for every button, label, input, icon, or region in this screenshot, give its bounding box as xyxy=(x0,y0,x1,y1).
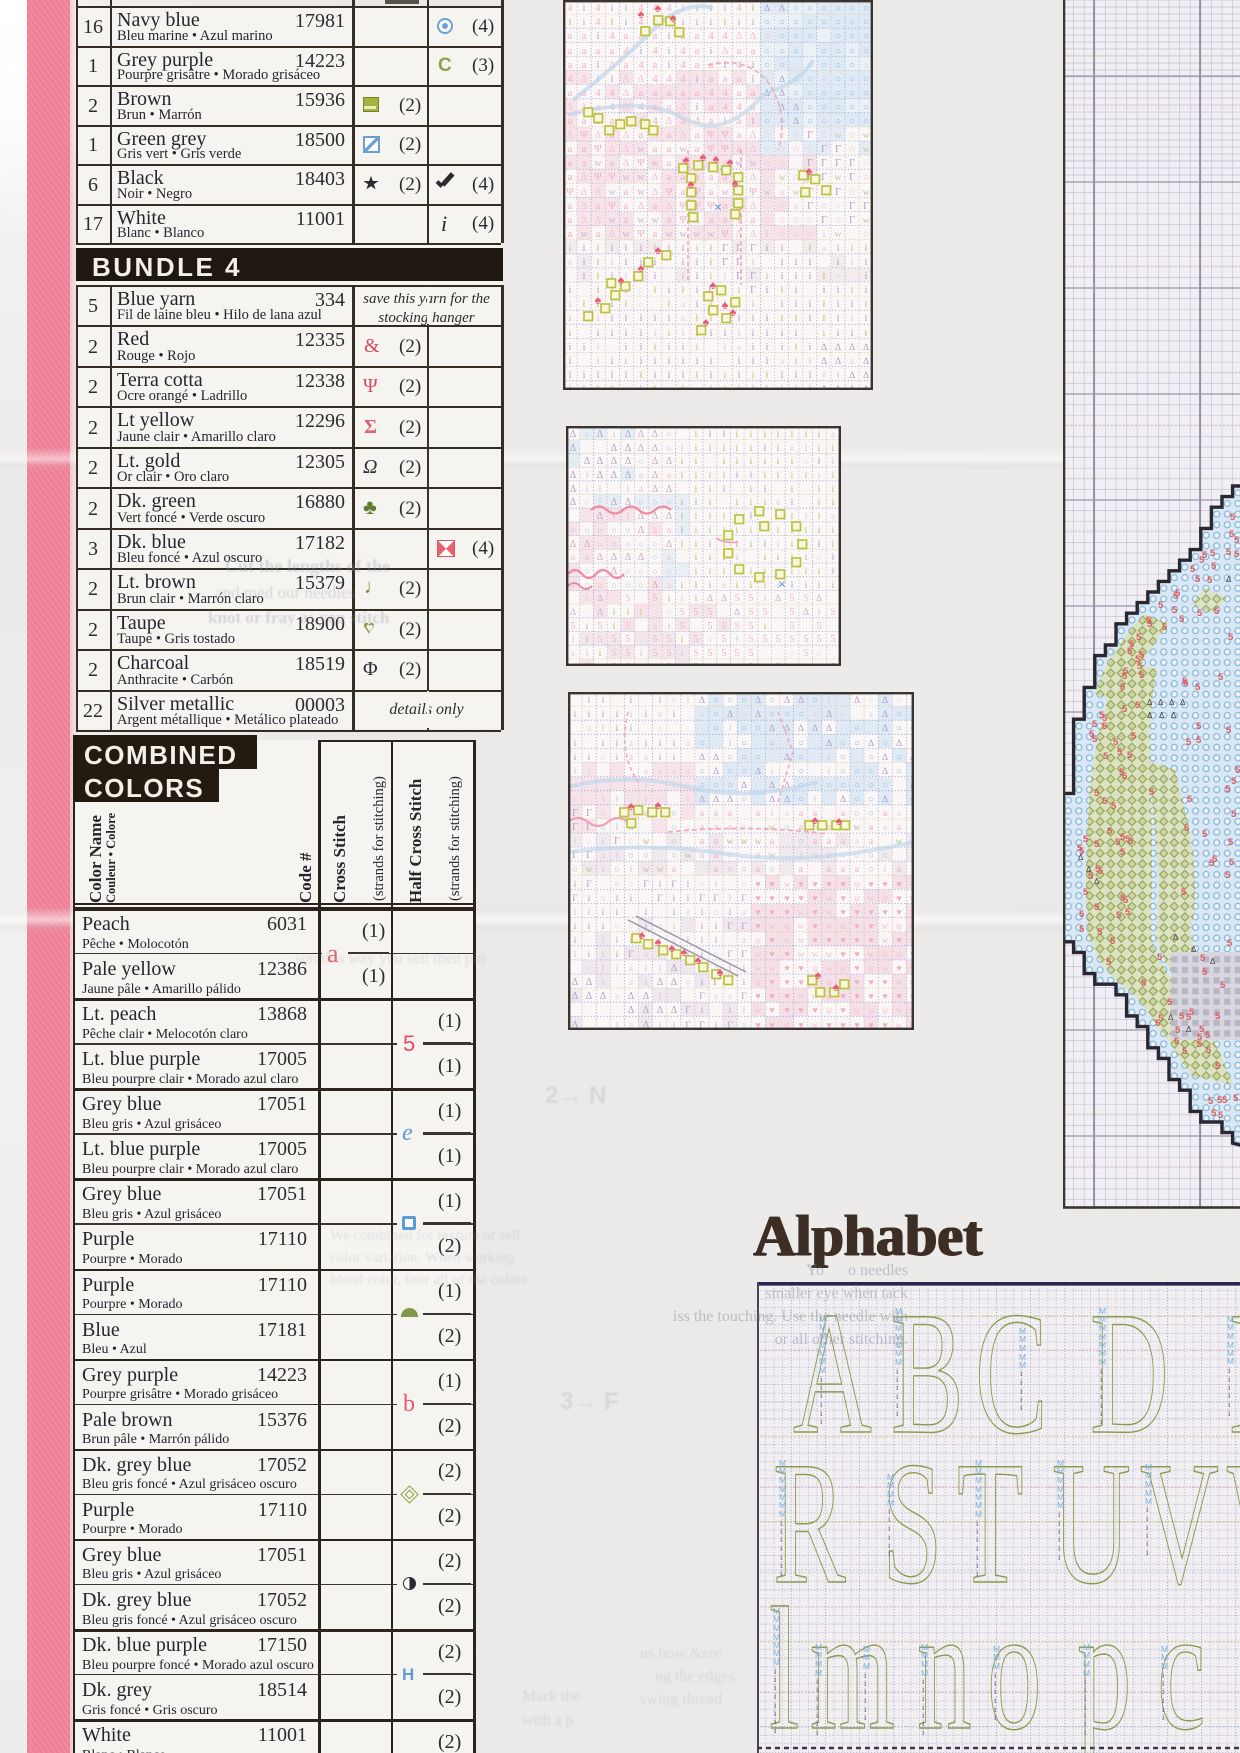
svg-text:5: 5 xyxy=(1209,858,1215,869)
svg-text:Δ: Δ xyxy=(625,552,632,563)
svg-text:5: 5 xyxy=(1167,997,1173,1008)
svg-text:Δ: Δ xyxy=(657,1005,664,1016)
svg-text:Γ: Γ xyxy=(835,144,841,155)
svg-text:a: a xyxy=(714,836,719,847)
svg-text:i: i xyxy=(736,444,739,454)
svg-text:ł: ł xyxy=(668,300,671,310)
svg-text:Δ: Δ xyxy=(581,215,588,226)
svg-text:5: 5 xyxy=(1229,529,1235,540)
svg-text:i: i xyxy=(738,370,741,381)
svg-text:4: 4 xyxy=(596,3,601,14)
svg-text:5: 5 xyxy=(1102,713,1108,724)
svg-text:○: ○ xyxy=(854,780,860,791)
svg-text:a: a xyxy=(568,214,573,226)
svg-text:○: ○ xyxy=(586,836,591,846)
svg-text:☆: ☆ xyxy=(848,144,857,155)
svg-text:i: i xyxy=(611,356,614,367)
svg-text:i: i xyxy=(569,370,572,381)
svg-text:i: i xyxy=(723,457,726,467)
svg-text:a: a xyxy=(667,214,672,226)
svg-text:ł: ł xyxy=(766,371,769,381)
svg-text:♥: ♥ xyxy=(854,977,859,987)
svg-text:5: 5 xyxy=(1117,747,1123,758)
svg-text:☆: ☆ xyxy=(778,215,787,226)
svg-text:Δ: Δ xyxy=(1191,945,1197,954)
svg-text:i: i xyxy=(809,370,812,381)
svg-text:a: a xyxy=(700,808,705,819)
svg-text:Γ: Γ xyxy=(572,894,578,904)
svg-text:○: ○ xyxy=(821,3,827,14)
svg-text:i: i xyxy=(681,512,684,522)
svg-text:Γ: Γ xyxy=(572,822,578,833)
svg-text:a: a xyxy=(571,648,575,658)
svg-text:w: w xyxy=(637,172,645,183)
svg-text:Δ: Δ xyxy=(597,429,604,440)
svg-text:w: w xyxy=(755,949,762,959)
svg-text:Δ: Δ xyxy=(609,229,616,240)
svg-text:♠: ♠ xyxy=(700,150,707,164)
svg-text:i: i xyxy=(583,271,586,282)
svg-text:5: 5 xyxy=(1181,887,1187,898)
svg-text:5: 5 xyxy=(1179,614,1185,625)
svg-text:5: 5 xyxy=(612,634,617,645)
svg-text:○: ○ xyxy=(784,709,790,720)
svg-text:w: w xyxy=(755,837,762,847)
svg-text:5: 5 xyxy=(1120,847,1126,858)
svg-text:i: i xyxy=(729,908,732,918)
svg-text:×: × xyxy=(714,200,723,216)
svg-text:w: w xyxy=(657,865,664,875)
svg-text:♥: ♥ xyxy=(784,949,789,959)
svg-text:♥: ♥ xyxy=(755,879,760,889)
svg-text:○: ○ xyxy=(584,497,589,507)
svg-text:a: a xyxy=(568,171,573,183)
svg-text:Δ: Δ xyxy=(623,144,630,155)
svg-text:a: a xyxy=(714,991,718,1001)
svg-text:a: a xyxy=(883,822,887,832)
svg-text:Γ: Γ xyxy=(722,257,728,268)
svg-text:i: i xyxy=(805,567,808,577)
svg-text:♥: ♥ xyxy=(784,907,789,917)
svg-text:i: i xyxy=(625,342,628,353)
svg-text:w: w xyxy=(835,173,842,183)
svg-text:(strands for stitching): (strands for stitching) xyxy=(447,776,463,901)
svg-text:w: w xyxy=(882,963,889,973)
svg-text:Δ: Δ xyxy=(570,429,577,440)
svg-text:a: a xyxy=(855,864,860,875)
svg-text:w: w xyxy=(769,823,776,833)
svg-text:i: i xyxy=(696,18,699,28)
svg-text:○: ○ xyxy=(625,566,630,576)
svg-text:w: w xyxy=(826,949,833,959)
svg-text:w: w xyxy=(896,977,903,987)
svg-text:♥: ♥ xyxy=(769,893,774,903)
svg-text:Δ: Δ xyxy=(666,539,673,550)
svg-text:☆: ☆ xyxy=(806,144,815,155)
svg-text:Δ: Δ xyxy=(727,795,733,805)
svg-text:i: i xyxy=(750,498,753,508)
svg-text:w: w xyxy=(755,963,762,973)
svg-text:Δ: Δ xyxy=(755,696,761,706)
svg-text:○: ○ xyxy=(793,3,799,14)
svg-text:4: 4 xyxy=(708,87,714,99)
svg-text:i: i xyxy=(818,526,821,536)
svg-text:i: i xyxy=(736,457,739,467)
svg-text:a: a xyxy=(568,59,573,71)
svg-text:Δ: Δ xyxy=(623,74,630,85)
svg-text:○: ○ xyxy=(572,865,578,875)
svg-text:4: 4 xyxy=(652,73,658,85)
svg-text:○: ○ xyxy=(798,709,804,720)
svg-text:○: ○ xyxy=(779,46,785,57)
svg-text:i: i xyxy=(781,370,784,381)
svg-text:i: i xyxy=(574,710,577,720)
svg-text:i: i xyxy=(777,457,780,467)
svg-text:Δ: Δ xyxy=(755,710,761,720)
svg-text:i: i xyxy=(777,444,780,454)
svg-text:5: 5 xyxy=(1094,788,1100,799)
svg-text:♥: ♥ xyxy=(798,893,803,903)
svg-text:○: ○ xyxy=(868,865,874,875)
svg-text:i: i xyxy=(668,370,671,381)
svg-text:w: w xyxy=(798,907,805,917)
svg-text:♥: ♥ xyxy=(769,977,774,987)
svg-text:5: 5 xyxy=(749,648,754,659)
svg-text:○: ○ xyxy=(868,766,874,777)
svg-text:w: w xyxy=(863,145,870,155)
svg-text:♥: ♥ xyxy=(812,907,817,917)
svg-text:i: i xyxy=(625,18,628,28)
svg-text:5: 5 xyxy=(1235,765,1240,776)
svg-text:i: i xyxy=(695,444,698,454)
svg-text:a: a xyxy=(709,73,714,85)
svg-text:i: i xyxy=(781,342,784,353)
svg-text:w: w xyxy=(622,229,630,240)
svg-text:5: 5 xyxy=(708,621,713,632)
svg-text:i: i xyxy=(791,485,794,495)
svg-text:♥: ♥ xyxy=(868,991,873,1001)
svg-text:i: i xyxy=(583,4,586,14)
svg-text:5: 5 xyxy=(1222,1095,1228,1106)
svg-text:5: 5 xyxy=(1079,909,1085,920)
svg-text:a: a xyxy=(568,157,573,169)
svg-text:5: 5 xyxy=(1210,548,1216,559)
svg-text:○: ○ xyxy=(638,539,643,549)
svg-text:○: ○ xyxy=(741,709,746,719)
svg-text:○: ○ xyxy=(835,17,841,28)
svg-text:i: i xyxy=(668,329,671,339)
svg-text:i: i xyxy=(616,950,619,960)
svg-text:i: i xyxy=(791,457,794,467)
svg-text:○: ○ xyxy=(628,836,633,846)
svg-text:Γ: Γ xyxy=(614,836,620,847)
svg-text:Δ: Δ xyxy=(816,594,822,604)
svg-text:i: i xyxy=(602,922,605,932)
svg-text:ψ: ψ xyxy=(854,894,860,904)
svg-text:S: S xyxy=(625,621,631,632)
svg-text:Δ: Δ xyxy=(597,552,604,563)
svg-text:Δ: Δ xyxy=(584,456,591,467)
svg-text:5: 5 xyxy=(1157,952,1163,963)
svg-text:♥: ♥ xyxy=(854,991,859,1001)
svg-text:i: i xyxy=(832,581,835,591)
svg-text:○: ○ xyxy=(812,695,818,706)
svg-text:○: ○ xyxy=(798,766,804,777)
svg-text:○: ○ xyxy=(713,709,719,720)
svg-text:○: ○ xyxy=(896,752,902,763)
svg-text:○: ○ xyxy=(685,977,690,987)
svg-text:○: ○ xyxy=(611,525,616,535)
svg-text:i: i xyxy=(630,696,633,706)
svg-text:5: 5 xyxy=(1200,953,1206,964)
svg-text:a: a xyxy=(709,186,714,198)
svg-text:5: 5 xyxy=(680,621,685,632)
svg-text:5: 5 xyxy=(749,621,754,632)
svg-text:i: i xyxy=(710,46,713,57)
svg-text:i: i xyxy=(766,356,769,367)
svg-text:5: 5 xyxy=(763,634,768,645)
svg-text:i: i xyxy=(724,371,727,381)
svg-text:○: ○ xyxy=(849,74,855,85)
svg-text:i: i xyxy=(625,313,628,324)
svg-text:Δ: Δ xyxy=(623,130,630,141)
svg-text:i: i xyxy=(795,357,798,367)
svg-text:☆: ☆ xyxy=(792,215,801,226)
svg-text:i: i xyxy=(781,257,784,268)
svg-text:i: i xyxy=(588,894,591,904)
svg-text:i: i xyxy=(791,567,794,577)
svg-text:ψ: ψ xyxy=(784,922,790,932)
svg-text:Δ: Δ xyxy=(882,724,888,734)
svg-text:○: ○ xyxy=(584,566,589,576)
svg-text:w: w xyxy=(651,215,659,226)
svg-text:Γ: Γ xyxy=(643,880,649,890)
svg-text:5: 5 xyxy=(1155,1018,1161,1029)
svg-text:Δ: Δ xyxy=(611,470,618,481)
svg-text:a: a xyxy=(598,580,603,591)
svg-text:♥: ♥ xyxy=(784,977,789,987)
svg-text:ł: ł xyxy=(710,244,713,254)
svg-text:i: i xyxy=(795,271,798,282)
svg-text:5: 5 xyxy=(667,648,672,659)
svg-text:Δ: Δ xyxy=(567,130,574,141)
svg-text:w: w xyxy=(651,158,659,169)
svg-text:Δ: Δ xyxy=(581,201,588,212)
svg-text:w: w xyxy=(769,963,776,973)
svg-text:Δ: Δ xyxy=(567,102,574,113)
svg-text:Ψ: Ψ xyxy=(679,201,687,212)
svg-text:a: a xyxy=(686,766,690,776)
svg-text:Δ: Δ xyxy=(570,497,577,508)
svg-text:Δ: Δ xyxy=(1168,1013,1174,1022)
svg-text:i: i xyxy=(616,936,619,946)
svg-text:i: i xyxy=(865,313,868,324)
svg-text:a: a xyxy=(667,470,672,481)
svg-text:○: ○ xyxy=(793,46,799,57)
svg-text:5: 5 xyxy=(1233,1093,1239,1104)
svg-text:a: a xyxy=(737,73,742,85)
svg-text:5: 5 xyxy=(1158,600,1164,611)
svg-text:i: i xyxy=(764,430,767,440)
svg-text:Γ: Γ xyxy=(628,950,634,960)
svg-text:a: a xyxy=(624,214,629,226)
svg-text:a: a xyxy=(582,45,587,57)
svg-text:a: a xyxy=(742,907,746,917)
svg-text:ł: ł xyxy=(823,272,826,282)
svg-text:○: ○ xyxy=(727,752,733,763)
svg-text:a: a xyxy=(582,157,587,169)
svg-text:Ψ: Ψ xyxy=(566,187,574,198)
svg-text:w: w xyxy=(580,229,588,240)
svg-text:i: i xyxy=(668,342,671,353)
svg-text:Δ: Δ xyxy=(707,594,713,604)
svg-text:w: w xyxy=(896,949,903,959)
svg-text:i: i xyxy=(696,356,699,367)
svg-text:i: i xyxy=(654,313,657,324)
svg-text:5: 5 xyxy=(708,607,713,618)
svg-text:i: i xyxy=(701,1006,704,1016)
svg-text:Δ: Δ xyxy=(570,443,577,454)
svg-text:a: a xyxy=(653,87,658,99)
svg-text:5: 5 xyxy=(1220,980,1226,991)
svg-text:w: w xyxy=(835,131,842,141)
svg-text:5: 5 xyxy=(1187,794,1193,805)
svg-text:5: 5 xyxy=(1141,978,1147,989)
svg-text:○: ○ xyxy=(614,865,620,875)
svg-text:Δ: Δ xyxy=(826,739,832,749)
svg-text:ł: ł xyxy=(795,343,798,353)
svg-text:5: 5 xyxy=(776,634,781,645)
svg-text:♠: ♠ xyxy=(655,243,662,257)
svg-text:♥: ♥ xyxy=(854,935,859,945)
svg-text:ł: ł xyxy=(865,300,868,310)
svg-text:♥: ♥ xyxy=(784,1005,789,1015)
svg-text:Half Cross Stitch: Half Cross Stitch xyxy=(406,778,425,903)
svg-text:i: i xyxy=(795,299,798,310)
svg-text:i: i xyxy=(701,936,704,946)
svg-text:○: ○ xyxy=(625,525,630,535)
svg-text:5: 5 xyxy=(1125,907,1131,918)
svg-text:i: i xyxy=(574,922,577,932)
svg-text:Γ: Γ xyxy=(821,172,827,183)
svg-text:S: S xyxy=(693,648,699,659)
svg-text:♥: ♥ xyxy=(854,921,859,931)
svg-text:i: i xyxy=(723,471,726,481)
svg-text:Δ: Δ xyxy=(638,201,645,212)
svg-text:a: a xyxy=(653,525,658,536)
svg-text:i: i xyxy=(832,540,835,550)
svg-text:♥: ♥ xyxy=(769,907,774,917)
svg-text:i: i xyxy=(832,444,835,454)
svg-text:5: 5 xyxy=(1172,605,1178,616)
svg-text:♠: ♠ xyxy=(669,941,676,955)
svg-text:5: 5 xyxy=(1111,801,1117,812)
svg-text:i: i xyxy=(583,257,586,268)
svg-text:i: i xyxy=(709,444,712,454)
svg-text:a: a xyxy=(799,864,804,875)
svg-text:5: 5 xyxy=(1120,682,1126,693)
svg-text:ł: ł xyxy=(597,244,600,254)
svg-text:○: ○ xyxy=(868,752,874,763)
svg-text:4: 4 xyxy=(666,73,672,85)
svg-text:i: i xyxy=(695,430,698,440)
svg-text:Δ: Δ xyxy=(638,74,645,85)
svg-text:a: a xyxy=(841,836,846,847)
svg-text:ł: ł xyxy=(597,272,600,282)
svg-text:i: i xyxy=(795,257,798,268)
svg-text:○: ○ xyxy=(643,851,649,861)
svg-text:i: i xyxy=(766,328,769,339)
svg-text:♥: ♥ xyxy=(798,1005,803,1015)
svg-text:a: a xyxy=(596,228,601,240)
svg-text:a: a xyxy=(667,525,672,536)
svg-text:i: i xyxy=(682,342,685,353)
svg-text:i: i xyxy=(583,370,586,381)
svg-text:i: i xyxy=(851,244,854,254)
svg-text:Δ: Δ xyxy=(699,795,705,805)
svg-text:a: a xyxy=(897,808,901,818)
svg-text:Δ: Δ xyxy=(671,977,678,988)
svg-text:i: i xyxy=(696,102,699,113)
svg-text:○: ○ xyxy=(798,837,804,847)
svg-text:a: a xyxy=(737,45,742,57)
svg-text:ł: ł xyxy=(781,314,784,324)
svg-text:i: i xyxy=(687,894,690,904)
svg-text:5: 5 xyxy=(571,621,576,632)
svg-text:5: 5 xyxy=(1127,750,1133,761)
svg-text:a: a xyxy=(596,45,601,57)
svg-text:○: ○ xyxy=(896,723,902,734)
svg-text:a: a xyxy=(813,709,817,719)
svg-text:♥: ♥ xyxy=(812,1005,817,1015)
svg-text:○: ○ xyxy=(611,539,616,549)
svg-text:S: S xyxy=(748,634,754,645)
svg-text:a: a xyxy=(653,200,658,212)
svg-text:i: i xyxy=(752,371,755,381)
svg-text:○: ○ xyxy=(835,60,841,71)
svg-text:○: ○ xyxy=(769,695,775,706)
svg-text:i: i xyxy=(625,257,628,268)
svg-text:Δ: Δ xyxy=(652,172,659,183)
svg-text:i: i xyxy=(715,922,718,932)
svg-text:Δ: Δ xyxy=(1180,698,1186,707)
svg-text:Γ: Γ xyxy=(849,172,855,183)
svg-text:○: ○ xyxy=(779,17,785,28)
svg-text:☆: ☆ xyxy=(806,229,815,240)
svg-text:○: ○ xyxy=(741,723,747,734)
svg-text:Δ: Δ xyxy=(623,88,630,99)
svg-text:a: a xyxy=(799,808,804,819)
svg-text:○: ○ xyxy=(835,201,840,211)
svg-text:5: 5 xyxy=(1098,866,1104,877)
svg-text:i: i xyxy=(837,299,840,310)
svg-text:Δ: Δ xyxy=(597,456,604,467)
svg-text:☆: ☆ xyxy=(778,229,787,240)
svg-text:♥: ♥ xyxy=(755,921,760,931)
svg-text:○: ○ xyxy=(699,766,705,777)
svg-text:a: a xyxy=(624,59,629,71)
svg-text:a: a xyxy=(624,30,629,42)
svg-text:a: a xyxy=(869,709,873,719)
svg-text:○: ○ xyxy=(821,46,827,57)
svg-text:S: S xyxy=(734,621,740,632)
svg-text:i: i xyxy=(781,243,784,254)
svg-text:Δ: Δ xyxy=(600,991,607,1002)
svg-text:a: a xyxy=(667,157,672,169)
svg-text:Γ: Γ xyxy=(849,201,855,212)
svg-text:Δ: Δ xyxy=(666,116,673,127)
svg-text:4: 4 xyxy=(652,45,658,57)
